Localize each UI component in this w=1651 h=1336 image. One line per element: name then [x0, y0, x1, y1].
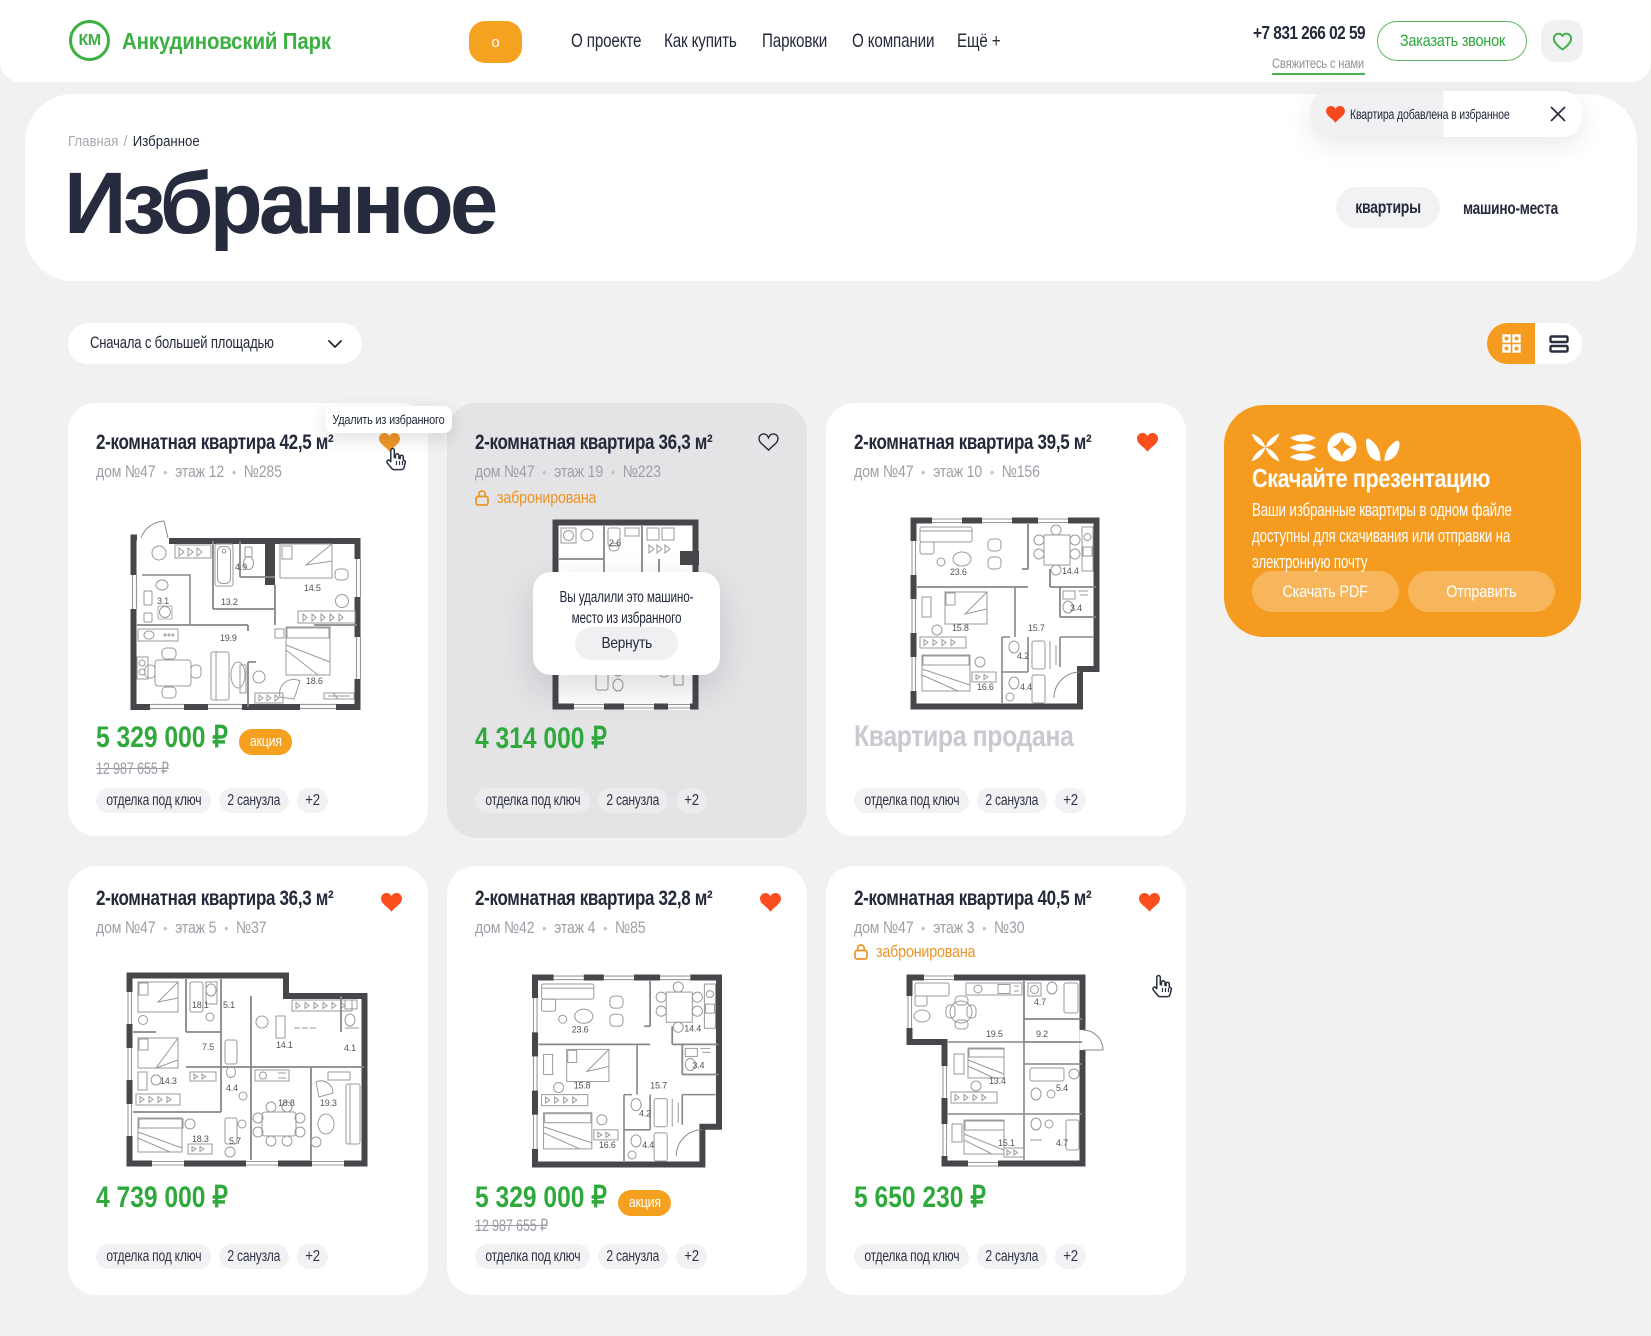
svg-text:15.1: 15.1	[998, 1138, 1015, 1148]
svg-text:4.2: 4.2	[639, 1109, 651, 1119]
svg-text:4.9: 4.9	[235, 562, 247, 572]
svg-text:5.1: 5.1	[223, 1000, 235, 1010]
svg-text:4.4: 4.4	[1020, 682, 1032, 692]
svg-text:14.3: 14.3	[160, 1076, 177, 1086]
svg-text:5.7: 5.7	[229, 1136, 241, 1146]
svg-text:14.4: 14.4	[684, 1023, 701, 1033]
svg-text:14.1: 14.1	[276, 1040, 293, 1050]
svg-text:14.4: 14.4	[1062, 566, 1079, 576]
svg-text:23.6: 23.6	[950, 567, 967, 577]
svg-text:4.4: 4.4	[642, 1140, 654, 1150]
svg-text:23.6: 23.6	[572, 1024, 589, 1034]
svg-text:13.2: 13.2	[221, 597, 238, 607]
svg-text:3.4: 3.4	[692, 1060, 704, 1070]
svg-text:4.7: 4.7	[1034, 997, 1046, 1007]
svg-text:15.7: 15.7	[1028, 623, 1045, 633]
svg-text:4.2: 4.2	[1017, 651, 1029, 661]
svg-text:2.6: 2.6	[609, 538, 621, 548]
svg-text:9.2: 9.2	[1036, 1029, 1048, 1039]
svg-text:19.9: 19.9	[220, 633, 237, 643]
svg-text:16.6: 16.6	[599, 1140, 616, 1150]
svg-text:14.5: 14.5	[304, 583, 321, 593]
svg-text:4.7: 4.7	[1056, 1138, 1068, 1148]
svg-text:4.4: 4.4	[226, 1083, 238, 1093]
svg-text:7.5: 7.5	[202, 1042, 214, 1052]
svg-text:18.3: 18.3	[192, 1134, 209, 1144]
svg-text:15.7: 15.7	[650, 1081, 667, 1091]
svg-text:5.4: 5.4	[1056, 1083, 1068, 1093]
svg-text:19.3: 19.3	[320, 1098, 337, 1108]
svg-text:19.5: 19.5	[986, 1029, 1003, 1039]
svg-text:4.1: 4.1	[344, 1043, 356, 1053]
svg-text:3.4: 3.4	[1070, 603, 1082, 613]
svg-text:15.8: 15.8	[574, 1081, 591, 1091]
svg-text:18.1: 18.1	[192, 1000, 209, 1010]
svg-text:18.8: 18.8	[278, 1098, 295, 1108]
svg-text:18.6: 18.6	[306, 676, 323, 686]
svg-text:16.6: 16.6	[977, 682, 994, 692]
svg-text:3.1: 3.1	[157, 596, 169, 606]
svg-text:15.8: 15.8	[952, 623, 969, 633]
svg-text:13.4: 13.4	[989, 1076, 1006, 1086]
